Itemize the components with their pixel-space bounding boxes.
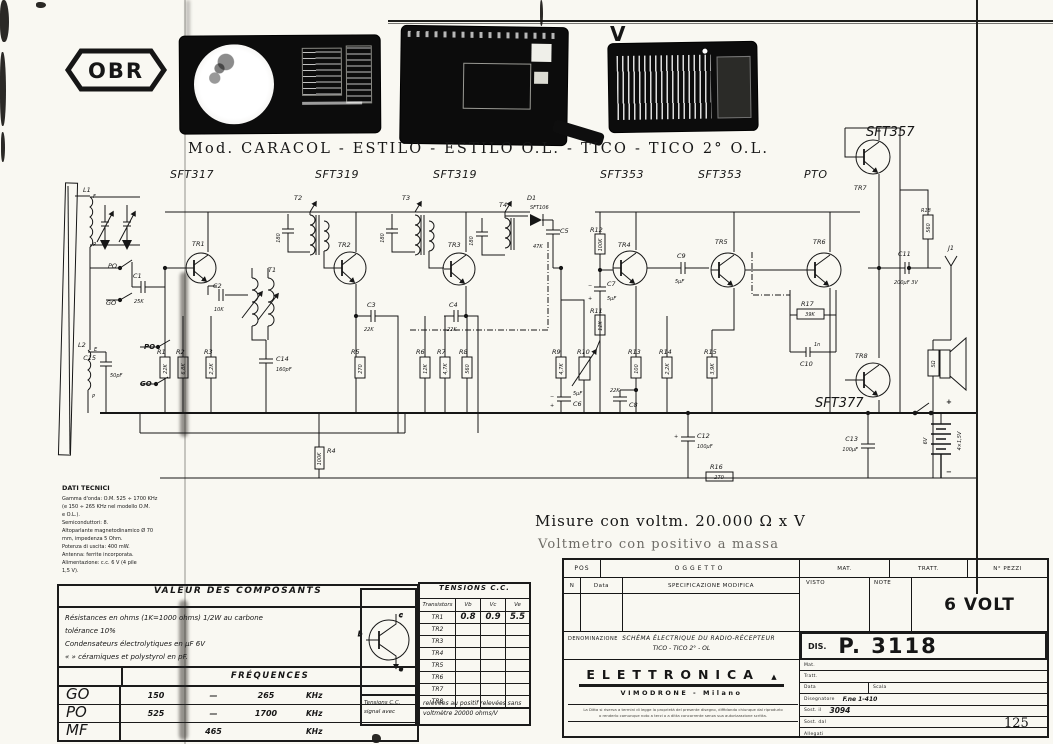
tr5-symbol [711, 253, 745, 287]
label-c1-value: 25K [134, 299, 144, 305]
side-label: Data [800, 685, 816, 690]
label-c9-value: 5μF [675, 279, 684, 285]
dati-tecnici-block: DATI TECNICI Gamma d'onda: O.M. 525 ÷ 17… [62, 484, 200, 575]
tensions-footer-right-1: relevées au positif relevées sans [423, 699, 526, 709]
cell-vb [456, 648, 481, 660]
label-sft377: SFT377 [815, 396, 864, 411]
band-column-head [59, 668, 123, 685]
oggetto-cell: OGGETTO [601, 560, 800, 578]
label-t2: T2 [294, 194, 302, 202]
band-mf: MF [59, 723, 121, 740]
label-c13-value: 100μF [842, 447, 858, 453]
table-row: TR10.80.95.5 [420, 612, 529, 624]
col-transistors: Transistors [420, 599, 456, 612]
tensions-table: TENSIONS C.C. Transistors Vb Vc Ve TR10.… [418, 582, 531, 709]
label-c6-minus: − [550, 394, 554, 400]
tensions-footer-left-2: signal avec [364, 708, 413, 717]
label-r15: R15 [704, 348, 717, 356]
dati-line: 1,5 V). [62, 567, 200, 575]
label-po-b: PO [144, 343, 155, 351]
label-r2-value: 6,8K [181, 363, 187, 375]
label-r11: R11 [590, 307, 603, 315]
cell-vc [481, 648, 506, 660]
tensions-footer-right: relevées au positif relevées sans voltmè… [418, 696, 531, 726]
label-c5-value: 47K [533, 244, 543, 250]
label-r9: R9 [552, 348, 561, 356]
dati-line: Altoparlante magnetodinamico Ø 70 [62, 527, 200, 535]
dati-line: e O.L.). [62, 511, 200, 519]
cell-vb [456, 684, 481, 696]
table-row: TR4 [420, 648, 529, 660]
label-t3-cap: 180 [380, 233, 386, 243]
po-from: 525 [121, 705, 191, 722]
label-c15: C15 [83, 354, 96, 362]
tr6-symbol [807, 253, 841, 287]
side-row-mat: Mat. [800, 660, 1047, 671]
mat-cell: MAT. [800, 560, 890, 578]
side-row-tratt: Tratt. [800, 671, 1047, 682]
empty-mod-cell [581, 594, 623, 632]
label-c5: C5 [560, 227, 569, 235]
company-underline [579, 684, 784, 687]
tensions-footer-left-1: Tensions C.C. [364, 699, 413, 708]
dati-line: (e 150 ÷ 265 KHz nel modello O.M. [62, 503, 200, 511]
label-tr8: TR8 [855, 352, 868, 360]
label-r7: R7 [437, 348, 447, 356]
label-l1-p: P [93, 242, 96, 248]
label-battery-cells: 4×1,5V [957, 431, 963, 450]
cell-vc: 0.9 [481, 612, 506, 624]
dis-label: DIS. [808, 642, 826, 651]
side-row-data-scala: DataScala [800, 683, 1047, 694]
label-c15-value: 50pF [110, 373, 123, 379]
specificazione-cell: SPECIFICAZIONE MODIFICA [623, 578, 800, 594]
label-r16: R16 [710, 463, 723, 471]
side-label2: Scala [869, 685, 887, 690]
label-c3: C3 [367, 301, 376, 309]
label-tr4: TR4 [618, 241, 631, 249]
mf-value: 465 [191, 723, 236, 740]
label-c6: C6 [573, 400, 582, 408]
mf-to [236, 723, 296, 740]
label-r4: R4 [327, 447, 336, 455]
label-c13: C13 [845, 435, 858, 443]
label-d1-type: SFT106 [530, 205, 549, 211]
tr1-symbol [186, 253, 216, 283]
cell-vb [456, 636, 481, 648]
cell-ve [506, 636, 529, 648]
label-c8: C8 [629, 401, 638, 409]
voltmeter-note: Voltmetro con positivo a massa [538, 537, 779, 552]
tensions-title: TENSIONS C.C. [420, 584, 529, 599]
dati-line: Potenza di uscita: 400 mW. [62, 543, 200, 551]
label-c3-value: 22K [364, 327, 374, 333]
side-label: Sost. dal [800, 720, 826, 725]
dati-line: Antenna: ferrite incorporata. [62, 551, 200, 559]
label-r13-value: 100 [634, 364, 640, 374]
label-r13: R13 [628, 348, 641, 356]
label-c12-value: 100μF [697, 444, 713, 450]
tr7-symbol [856, 140, 890, 174]
cell-vb [456, 624, 481, 636]
label-r17: R17 [801, 300, 815, 308]
label-tr6: TR6 [813, 238, 826, 246]
cell-name: TR7 [420, 684, 456, 696]
label-r10: R10 [577, 348, 590, 356]
n-cell: N [564, 578, 581, 594]
po-to: 1700 [236, 705, 296, 722]
pos-cell: POS [564, 560, 601, 578]
label-po-a: PO [108, 262, 117, 270]
side-value: F.ne 1-410 [835, 696, 878, 703]
label-r15-value: 3,9K [710, 363, 716, 375]
table-row: TR6 [420, 672, 529, 684]
side-value: 3094 [821, 706, 850, 715]
denominazione-cell: DENOMINAZIONE SCHÉMA ÉLECTRIQUE DU RADIO… [564, 632, 800, 660]
label-c7-minus: − [588, 283, 592, 289]
label-c7-plus: + [588, 296, 592, 302]
cell-ve [506, 648, 529, 660]
scanned-schematic-page: OBR V Mod. CARACOL - ESTILO - ESTILO O.L… [0, 0, 1053, 744]
tr2-symbol [334, 252, 366, 284]
label-c7: C7 [607, 280, 617, 288]
label-battery-plus: + [946, 398, 952, 406]
label-r8: R8 [459, 348, 468, 356]
side-label: Sost. il [800, 708, 821, 713]
go-from: 150 [121, 687, 191, 704]
cell-name: TR2 [420, 624, 456, 636]
label-c4-value: 22K [447, 327, 457, 333]
label-r8-value: 560 [465, 364, 471, 374]
cell-ve [506, 684, 529, 696]
label-r3-value: 2,2K [209, 363, 215, 375]
side-row-disegnatore: DisegnatoreF.ne 1-410 [800, 694, 1047, 705]
label-c7-value: 5μF [607, 296, 616, 302]
label-t4-cap: 180 [469, 236, 475, 246]
label-tr3: TR3 [448, 241, 461, 249]
tensions-footer-left: Tensions C.C. signal avec [360, 696, 417, 726]
tensions-header-row: Transistors Vb Vc Ve [420, 599, 529, 612]
label-tr5: TR5 [715, 238, 728, 246]
side-label: Disegnatore [800, 697, 835, 702]
cell-vb [456, 660, 481, 672]
dati-line: Semiconduttori: 8. [62, 519, 200, 527]
label-r3: R3 [204, 348, 213, 356]
dis-number: P. 3118 [838, 634, 937, 658]
cell-vc [481, 684, 506, 696]
label-c10-value: 1n [814, 342, 820, 348]
cell-name: TR3 [420, 636, 456, 648]
label-r14: R14 [659, 348, 672, 356]
cell-ve [506, 660, 529, 672]
label-r6: R6 [416, 348, 425, 356]
label-r7-value: 4,7K [443, 363, 449, 375]
company-text: ELETTRONICA [586, 667, 760, 682]
label-r1-value: 22K [163, 363, 169, 373]
denominazione-model: TICO - TICO 2° - OL [568, 645, 795, 652]
label-t2-cap: 180 [276, 233, 282, 243]
label-t4: T4 [499, 201, 507, 209]
label-c8-value: 22K [610, 388, 620, 394]
cell-vb [456, 672, 481, 684]
band-po: PO [59, 705, 121, 722]
cell-ve [506, 672, 529, 684]
n-pezzi-cell: N° PEZZI [968, 560, 1047, 578]
label-c9: C9 [677, 252, 686, 260]
label-r12: R12 [590, 226, 603, 234]
company-city: VIMODRONE - Milano [564, 689, 799, 697]
dati-tecnici-title: DATI TECNICI [62, 484, 200, 492]
label-r2: R2 [176, 348, 185, 356]
cell-name: TR1 [420, 612, 456, 624]
side-label: Tratt. [800, 674, 817, 679]
table-row: TR7 [420, 684, 529, 696]
measurement-note: Misure con voltm. 20.000 Ω x V [535, 512, 806, 530]
label-go-a: GO [106, 299, 116, 307]
label-t3: T3 [402, 194, 410, 202]
label-r16-value: 270 [714, 475, 724, 481]
label-l2-p: P [92, 394, 95, 400]
col-ve: Ve [506, 599, 529, 612]
label-r9-value: 4,7K [559, 363, 565, 375]
dati-line: mm, impedenza 5 Ohm. [62, 535, 200, 543]
cell-name: TR6 [420, 672, 456, 684]
label-c12: C12 [697, 432, 710, 440]
cell-vc [481, 672, 506, 684]
cell-name: TR5 [420, 660, 456, 672]
label-r4-value: 100K [317, 452, 323, 466]
table-row: TR3 [420, 636, 529, 648]
label-c11-value: 200μF 3V [894, 280, 918, 286]
cell-ve: 5.5 [506, 612, 529, 624]
drawing-title-block: POS OGGETTO N Data SPECIFICAZIONE MODIFI… [562, 558, 1049, 738]
table-row: TR2 [420, 624, 529, 636]
label-c4: C4 [449, 301, 458, 309]
label-r18: R18 [921, 208, 931, 214]
schematic-wires [58, 128, 976, 478]
label-l2: L2 [78, 341, 86, 349]
label-tr7: TR7 [854, 184, 867, 192]
cell-vc [481, 660, 506, 672]
label-speaker-impedance: 5Ω [931, 360, 937, 367]
label-r5: R5 [351, 348, 360, 356]
label-c10: C10 [800, 360, 813, 368]
voltage-cell: 6 VOLT [912, 578, 1047, 632]
label-r1: R1 [157, 348, 166, 356]
go-to: 265 [236, 687, 296, 704]
cell-vb: 0.8 [456, 612, 481, 624]
label-c6-plus: + [550, 403, 554, 409]
dati-line: Gamma d'onda: O.M. 525 ÷ 1700 KHz [62, 495, 200, 503]
label-c11: C11 [898, 250, 911, 258]
tr4-symbol [613, 251, 647, 285]
go-dash: — [191, 687, 236, 704]
label-tr1: TR1 [192, 240, 205, 248]
cell-vc [481, 636, 506, 648]
label-battery-voltage: 6V [923, 437, 929, 444]
table-row: TR5 [420, 660, 529, 672]
label-r14-value: 2,2K [665, 363, 671, 375]
label-l1-f: F [93, 194, 96, 200]
transistor-symbols [186, 140, 890, 397]
label-battery-minus: − [946, 468, 952, 476]
data-col-cell: Data [581, 578, 623, 594]
cell-vc [481, 624, 506, 636]
label-t1: T1 [268, 266, 276, 274]
dis-number-cell: DIS. P. 3118 [800, 632, 1047, 660]
denominazione-text: SCHÉMA ÉLECTRIQUE DU RADIO-RÉCEPTEUR [622, 635, 775, 642]
label-d1: D1 [527, 194, 536, 202]
empty-mod-cell [564, 594, 581, 632]
label-c1: C1 [133, 272, 142, 280]
cell-ve [506, 624, 529, 636]
tr3-symbol [443, 253, 475, 285]
label-c2-value: 10K [214, 307, 224, 313]
resistor-boxes [160, 215, 939, 481]
label-j1: J1 [946, 244, 954, 252]
denominazione-line1: DENOMINAZIONE SCHÉMA ÉLECTRIQUE DU RADIO… [568, 635, 795, 642]
label-c12-plus: + [674, 434, 678, 440]
tr8-symbol [856, 363, 890, 397]
label-r12-value: 100K [598, 238, 604, 252]
label-c6-value: 5μF [573, 391, 582, 397]
tratt-cell: TRATT. [890, 560, 968, 578]
label-c14-value: 160pF [276, 367, 292, 373]
label-r5-value: 270 [358, 364, 364, 374]
pinout-box [360, 588, 417, 696]
label-go-b: GO [140, 380, 152, 388]
mf-from [121, 723, 191, 740]
legal-fineprint: La Ditta si riserva a termini di legge l… [568, 704, 798, 722]
cell-name: TR4 [420, 648, 456, 660]
band-go: GO [59, 687, 121, 704]
po-dash: — [191, 705, 236, 722]
col-vb: Vb [456, 599, 481, 612]
tensions-footer-right-2: voltmètre 20000 ohms/V [423, 709, 526, 719]
side-label: Mat. [800, 663, 815, 668]
page-number: 125 [1004, 716, 1029, 731]
label-r6-value: 12K [423, 363, 429, 373]
label-r11-value: 12K [598, 320, 604, 330]
label-l1: L1 [83, 186, 91, 194]
empty-mod-cell [623, 594, 800, 632]
company-name: ELETTRONICA ▲ [564, 667, 799, 682]
visto-cell: VISTO [800, 578, 870, 632]
label-c2: C2 [213, 282, 222, 290]
side-label: Allegati [800, 732, 823, 737]
label-r17-value: 39K [805, 312, 815, 318]
company-cell: ELETTRONICA ▲ VIMODRONE - Milano La Ditt… [564, 660, 800, 738]
dati-line: Alimentazione: c.c. 6 V (4 pile [62, 559, 200, 567]
fineprint-line2: o renderlo comunque noto a terzi o a dit… [570, 713, 796, 719]
label-r18-value: 560 [926, 223, 932, 233]
label-tr2: TR2 [338, 241, 351, 249]
company-triangle-mark: ▲ [771, 673, 776, 681]
note-cell: NOTE [870, 578, 912, 632]
denominazione-label: DENOMINAZIONE [568, 636, 618, 642]
label-sft357: SFT357 [866, 125, 915, 140]
label-c14: C14 [276, 355, 289, 363]
col-vc: Vc [481, 599, 506, 612]
